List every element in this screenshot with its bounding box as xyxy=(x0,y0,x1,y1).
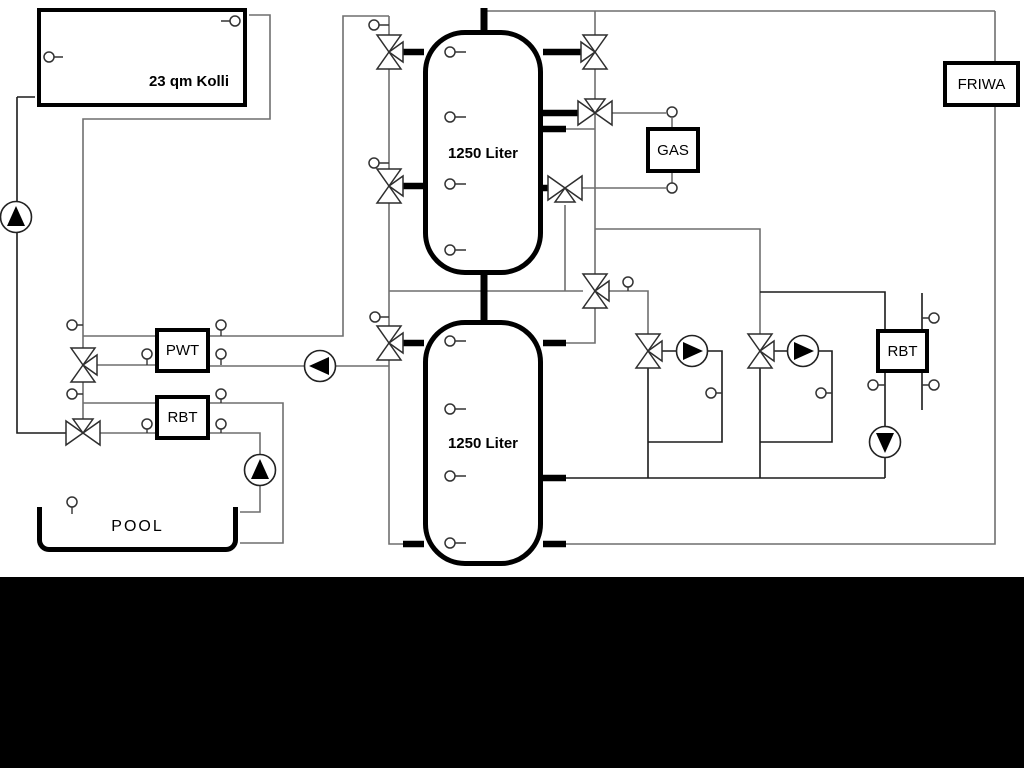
sensor-icon xyxy=(445,471,455,481)
valve-gas-return-icon xyxy=(548,176,582,202)
valve-circuit2-mixer-icon xyxy=(748,334,774,368)
sensor-icon xyxy=(67,497,77,507)
sensor-icon xyxy=(445,245,455,255)
pump-pwt-icon xyxy=(305,351,336,382)
pump-solar-icon xyxy=(1,202,32,233)
sensor-icon xyxy=(816,388,826,398)
sensor-icon xyxy=(369,20,379,30)
hydraulic-diagram: 23 qm Kolli 1250 Liter 1250 Liter GAS FR… xyxy=(0,0,1024,768)
valve-tank1-top-left-icon xyxy=(377,35,403,69)
valve-gas-supply-icon xyxy=(578,99,612,125)
sensor-icon xyxy=(623,277,633,287)
sensor-icon xyxy=(142,419,152,429)
sensor-icon xyxy=(868,380,878,390)
sensor-icon xyxy=(929,313,939,323)
sensor-icon xyxy=(667,107,677,117)
temperature-sensors xyxy=(44,16,939,548)
sensor-icon xyxy=(445,336,455,346)
valve-tank2-left-icon xyxy=(377,326,403,360)
valve-tank1-top-right-icon xyxy=(581,35,607,69)
sensor-icon xyxy=(216,349,226,359)
valve-solar-pwt-icon xyxy=(71,348,97,382)
sensor-icon xyxy=(230,16,240,26)
sensor-icon xyxy=(369,158,379,168)
sensor-icon xyxy=(142,349,152,359)
sensor-icon xyxy=(445,47,455,57)
sensor-icon xyxy=(445,538,455,548)
pump-pool-icon xyxy=(245,455,276,486)
sensor-icon xyxy=(445,179,455,189)
valve-distribution-icon xyxy=(583,274,609,308)
sensor-icon xyxy=(67,320,77,330)
valve-tank1-mid-left-icon xyxy=(377,169,403,203)
sensor-icon xyxy=(706,388,716,398)
sensor-icon xyxy=(216,389,226,399)
sensor-icon xyxy=(667,183,677,193)
sensor-icon xyxy=(929,380,939,390)
bottom-black-bar xyxy=(0,577,1024,768)
pump-rbt-right-icon xyxy=(870,427,901,458)
pump-circuit1-icon xyxy=(677,336,708,367)
sensor-icon xyxy=(67,389,77,399)
sensor-stems xyxy=(54,21,929,543)
sensor-icon xyxy=(445,404,455,414)
valve-circuit1-mixer-icon xyxy=(636,334,662,368)
sensor-icon xyxy=(370,312,380,322)
sensor-icon xyxy=(216,419,226,429)
valve-solar-return-icon xyxy=(66,419,100,445)
pump-circuit2-icon xyxy=(788,336,819,367)
sensor-icon xyxy=(445,112,455,122)
sensor-icon xyxy=(44,52,54,62)
sensor-icon xyxy=(216,320,226,330)
